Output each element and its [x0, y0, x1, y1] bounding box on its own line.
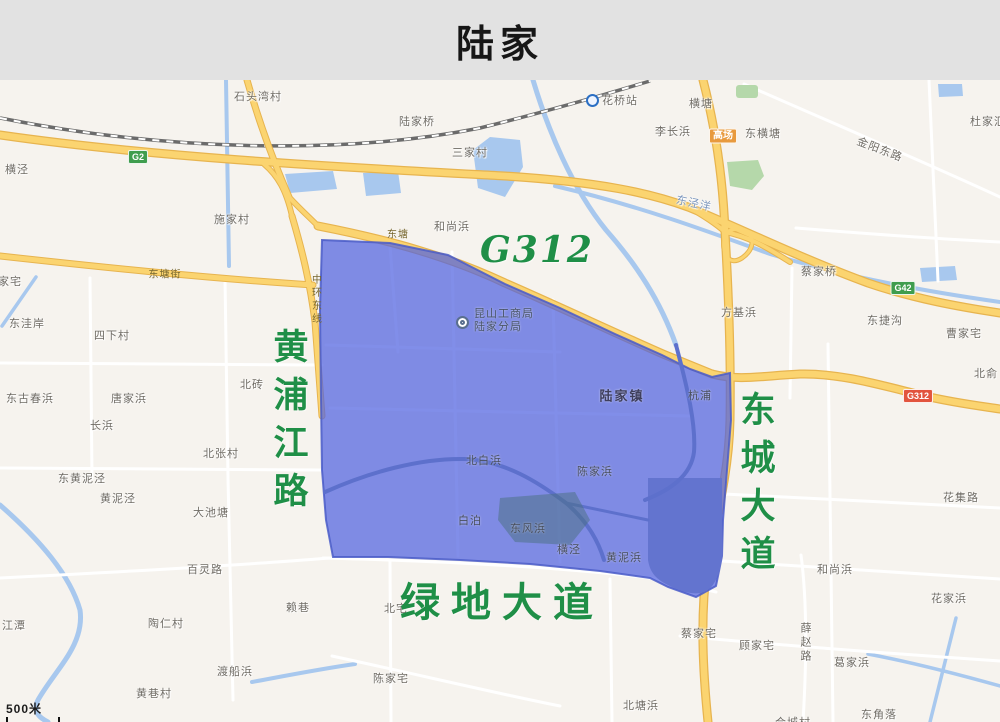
poi-line2: 陆家分局 — [474, 321, 534, 334]
road-label-dongcheng-avenue: 东城大道 — [730, 391, 781, 583]
town-label-lujiazhen: 陆家镇 — [599, 386, 644, 405]
scale-text: 500米 — [6, 702, 42, 716]
poi-kunshan-bureau: 昆山工商局 陆家分局 — [456, 308, 534, 334]
road-label-g312: G312 — [480, 229, 594, 271]
badge-gaochang-toll: 高场 — [709, 129, 737, 144]
metro-station-icon — [586, 94, 599, 107]
badge-g42: G42 — [890, 281, 915, 295]
page-title: 陆家 — [456, 13, 544, 68]
badge-g2: G2 — [128, 150, 148, 164]
scale-bar — [6, 717, 60, 722]
road-label-huangpujiang-road: 黄浦江路 — [263, 328, 314, 520]
map-scale: 500米 — [6, 700, 60, 722]
poi-line1: 昆山工商局 — [474, 308, 534, 321]
badge-g312: G312 — [903, 389, 933, 403]
map-screenshot: 石头湾村横泾施家村陆家桥三家村花桥站李长浜横塘东横塘金阳东路杜家汇东泾洋蔡家桥方… — [0, 0, 1000, 722]
poi-circle-icon — [456, 316, 469, 329]
road-label-lvdi-avenue: 绿地大道 — [400, 570, 604, 628]
title-bar: 陆家 — [0, 0, 1000, 80]
